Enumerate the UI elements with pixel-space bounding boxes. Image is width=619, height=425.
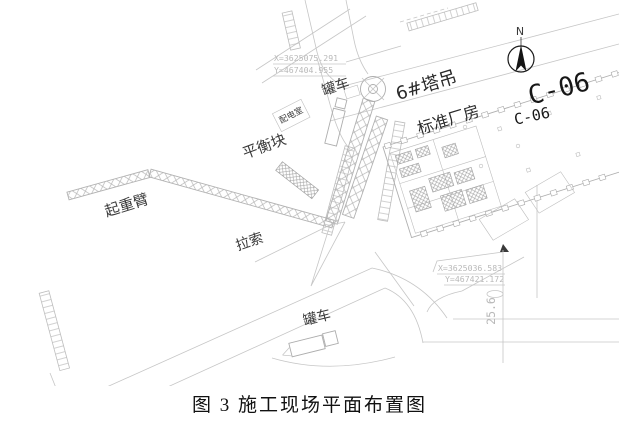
building-code-small: C-06: [512, 104, 551, 129]
tanker-bottom-label: 罐车: [301, 306, 332, 329]
tanker-top-label: 罐车: [320, 74, 352, 99]
north-compass: N: [508, 25, 534, 72]
north-arrow-icon: [516, 45, 527, 72]
survey-point-top-label: X=3625075.291 Y=467404.955: [273, 46, 401, 76]
tanker-truck-top: [325, 98, 348, 147]
counterweight-block: [276, 162, 319, 199]
site-plan-drawing: 配电室 N X=3625075.291 Y=467404.955 X=36250…: [0, 0, 619, 386]
survey-point-right-label: X=3625036.583 Y=467421.172: [433, 244, 509, 285]
power-distribution-room: 配电室: [272, 99, 310, 131]
building-dot: [479, 164, 483, 168]
dimension-label: 25.6: [484, 297, 498, 325]
survey-right-y: Y=467421.172: [445, 274, 504, 284]
leader-arrow-icon: [500, 244, 509, 252]
building-dot: [463, 125, 467, 129]
survey-top-y: Y=467404.955: [274, 65, 333, 75]
guy-cable-label: 拉索: [234, 229, 266, 254]
tower-crane-mast: [326, 98, 388, 224]
power-room-label: 配电室: [277, 105, 305, 127]
survey-right-x: X=3625036.583: [438, 263, 502, 273]
crane-boom-label: 起重臂: [102, 190, 150, 220]
tanker-truck-bottom: [280, 331, 339, 359]
survey-top-x: X=3625075.291: [274, 53, 338, 63]
figure-caption: 图 3 施工现场平面布置图: [0, 390, 619, 417]
tower-crane-label: 6#塔吊: [393, 67, 459, 105]
factory-label: 标准厂房: [415, 101, 482, 138]
counterweight-label: 平衡块: [240, 130, 288, 162]
building-dot: [516, 144, 520, 148]
north-label: N: [516, 25, 524, 38]
building-ramps: [473, 170, 581, 243]
building-code-large: C-06: [525, 67, 593, 111]
figure-page: 配电室 N X=3625075.291 Y=467404.955 X=36250…: [0, 0, 619, 425]
